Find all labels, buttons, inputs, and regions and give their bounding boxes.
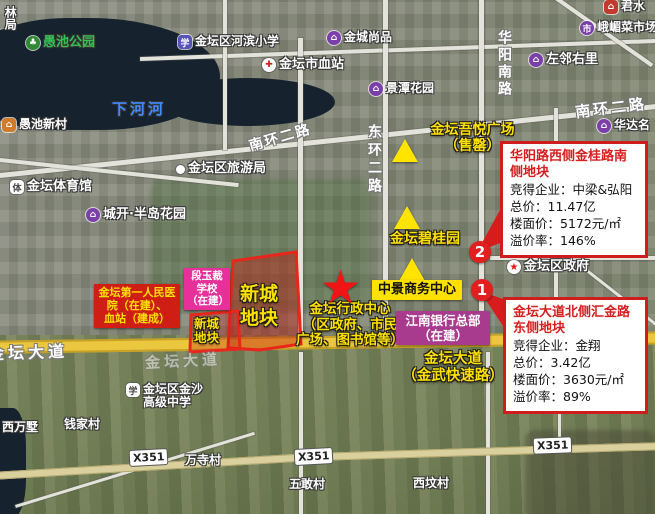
- info-box-plot2-row-4: 溢价率：146%: [510, 233, 638, 250]
- info-box-plot1-row-2: 总价：3.42亿: [513, 355, 638, 372]
- info-box-plot2-row-3: 楼面价：5172元/㎡: [510, 216, 638, 233]
- info-box-plot1-row-4: 溢价率：89%: [513, 389, 638, 406]
- info-box-plot2-row-2: 总价：11.47亿: [510, 199, 638, 216]
- info-box-plot2: 华阳路西侧金桂路南侧地块 竞得企业：中梁&弘阳 总价：11.47亿 楼面价：51…: [500, 141, 648, 258]
- info-box-plot1-row-1: 竞得企业：金翔: [513, 338, 638, 355]
- jintan-land-plot-map: 华阳南路 南环二路 南环二路 东环二路 金坛大道 金坛大道 X351 X351 …: [0, 0, 655, 514]
- plot-number-badge-2: 2: [469, 241, 491, 263]
- info-box-plot1-title: 金坛大道北侧汇金路东侧地块: [513, 305, 638, 336]
- info-box-plot2-title: 华阳路西侧金桂路南侧地块: [510, 149, 638, 180]
- plot-number-badge-1: 1: [471, 279, 493, 301]
- info-box-plot2-row-1: 竞得企业：中梁&弘阳: [510, 182, 638, 199]
- info-box-plot1-row-3: 楼面价：3630元/㎡: [513, 372, 638, 389]
- info-box-plot1: 金坛大道北侧汇金路东侧地块 竞得企业：金翔 总价：3.42亿 楼面价：3630元…: [503, 297, 648, 414]
